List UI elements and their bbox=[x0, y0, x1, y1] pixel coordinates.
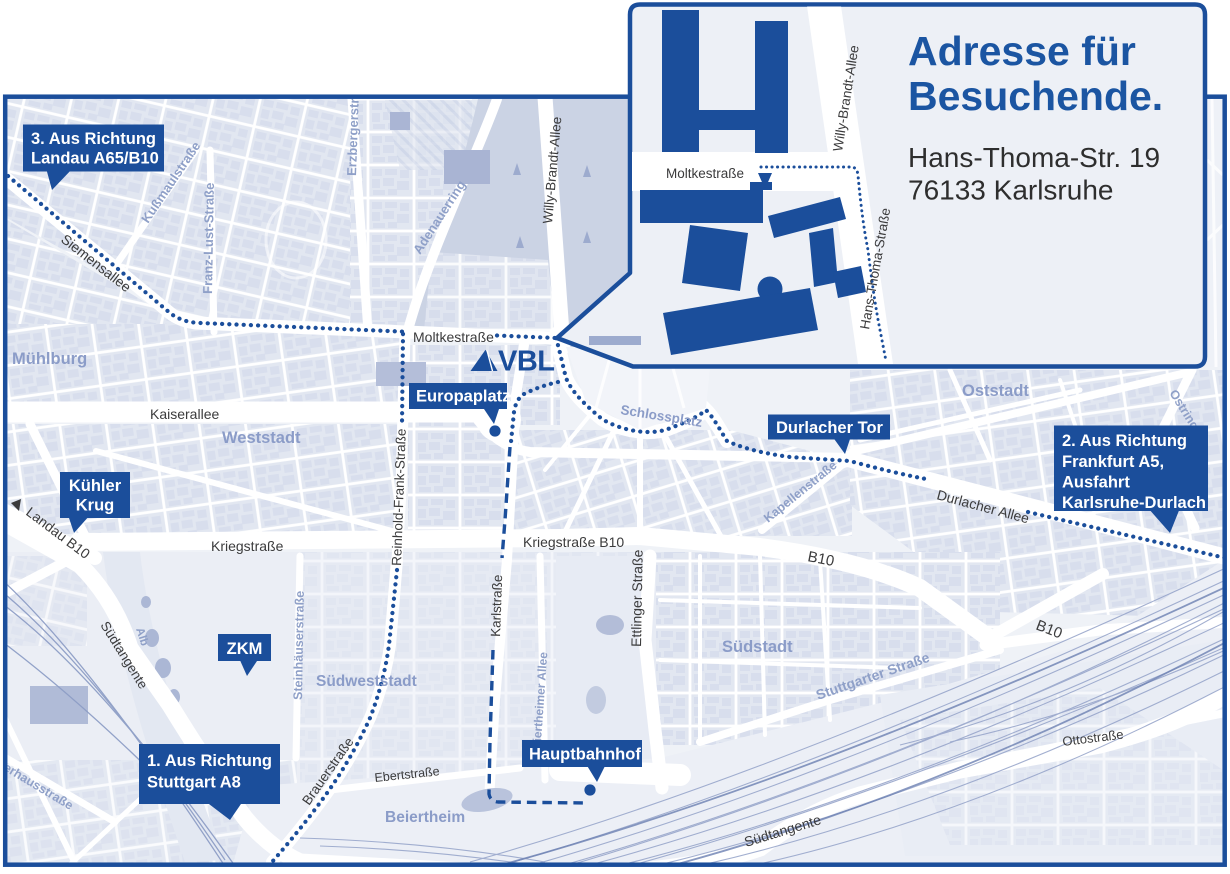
svg-text:Ettlinger Straße: Ettlinger Straße bbox=[628, 549, 646, 647]
svg-text:ZKM: ZKM bbox=[227, 640, 263, 658]
svg-text:Durlacher Tor: Durlacher Tor bbox=[776, 419, 884, 437]
svg-text:Kaiserallee: Kaiserallee bbox=[150, 406, 219, 422]
svg-text:Besuchende.: Besuchende. bbox=[908, 73, 1163, 119]
svg-text:Kriegstraße B10: Kriegstraße B10 bbox=[523, 534, 624, 550]
svg-text:Beiertheim: Beiertheim bbox=[385, 809, 465, 826]
svg-text:1. Aus Richtung: 1. Aus Richtung bbox=[147, 752, 272, 770]
svg-text:Oststadt: Oststadt bbox=[962, 382, 1029, 400]
svg-text:Moltkestraße: Moltkestraße bbox=[413, 329, 494, 345]
svg-text:Hauptbahnhof: Hauptbahnhof bbox=[529, 746, 641, 764]
svg-text:Adresse für: Adresse für bbox=[908, 28, 1136, 74]
svg-text:Weststadt: Weststadt bbox=[222, 429, 301, 447]
svg-text:76133 Karlsruhe: 76133 Karlsruhe bbox=[908, 175, 1113, 206]
svg-text:Krug: Krug bbox=[76, 497, 115, 515]
svg-text:Südweststadt: Südweststadt bbox=[316, 673, 417, 690]
svg-text:Mühlburg: Mühlburg bbox=[12, 350, 87, 368]
svg-text:Landau A65/B10: Landau A65/B10 bbox=[31, 150, 159, 168]
svg-text:Moltkestraße: Moltkestraße bbox=[666, 166, 744, 181]
svg-text:Europaplatz: Europaplatz bbox=[416, 388, 510, 406]
svg-text:Steinhäuserstraße: Steinhäuserstraße bbox=[291, 591, 307, 700]
svg-text:VBL: VBL bbox=[498, 346, 555, 378]
svg-text:Kühler: Kühler bbox=[69, 477, 122, 495]
svg-text:Hans-Thoma-Str. 19: Hans-Thoma-Str. 19 bbox=[908, 142, 1160, 173]
svg-text:2. Aus Richtung: 2. Aus Richtung bbox=[1062, 432, 1187, 450]
svg-text:Franz-Lust-Straße: Franz-Lust-Straße bbox=[200, 183, 217, 294]
svg-text:Südstadt: Südstadt bbox=[722, 638, 793, 656]
svg-text:Karlsruhe-Durlach: Karlsruhe-Durlach bbox=[1062, 494, 1206, 512]
svg-text:Karlstraße: Karlstraße bbox=[488, 574, 505, 637]
svg-text:Frankfurt A5,: Frankfurt A5, bbox=[1062, 453, 1164, 471]
svg-text:Stuttgart A8: Stuttgart A8 bbox=[147, 774, 241, 792]
svg-text:Ausfahrt: Ausfahrt bbox=[1062, 474, 1130, 492]
svg-text:3. Aus Richtung: 3. Aus Richtung bbox=[31, 130, 156, 148]
svg-text:Kriegstraße: Kriegstraße bbox=[211, 538, 284, 554]
